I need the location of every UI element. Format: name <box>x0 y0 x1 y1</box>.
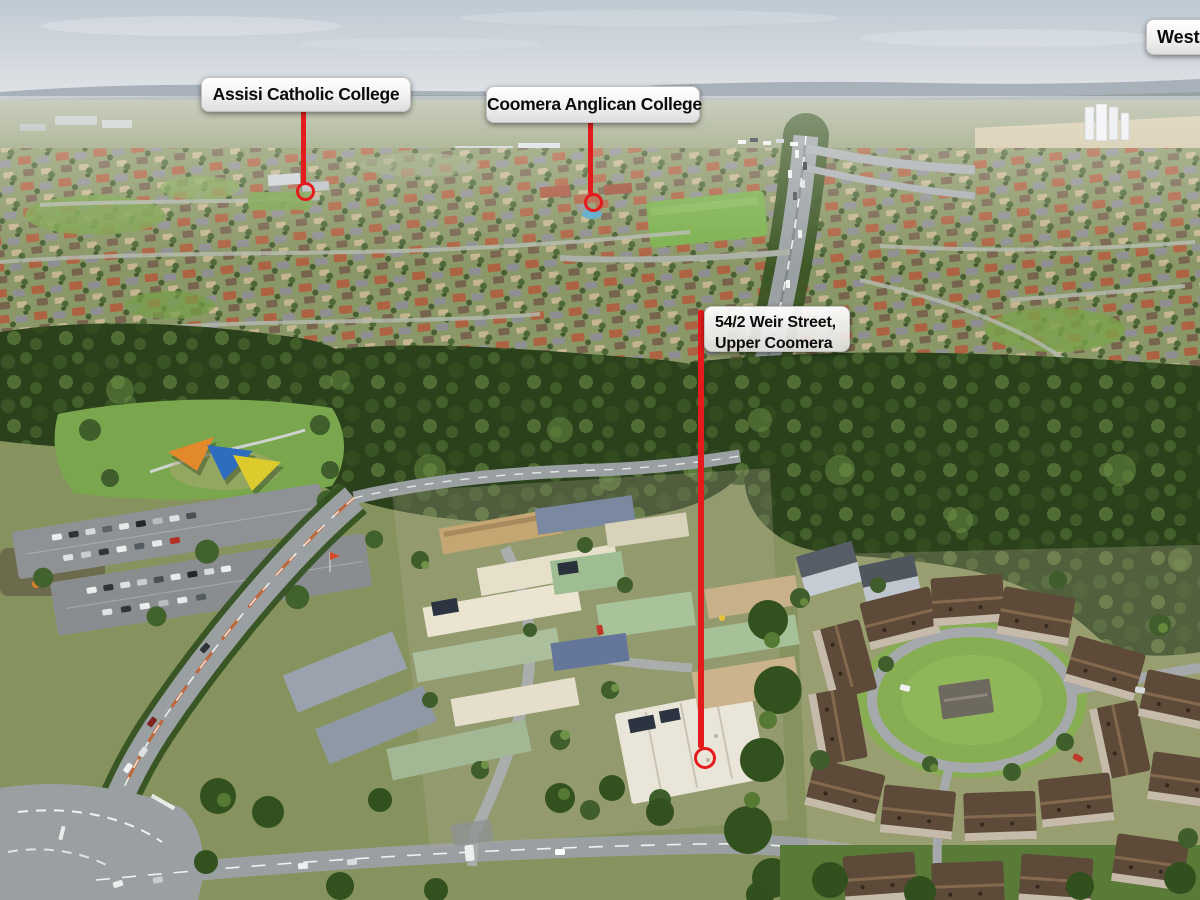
property-address-line2: Upper Coomera <box>715 333 839 354</box>
pointer-line-assisi <box>301 106 306 184</box>
callout-property-address: 54/2 Weir Street, Upper Coomera <box>704 306 850 352</box>
callout-assisi-text: Assisi Catholic College <box>213 84 400 104</box>
callout-assisi-catholic-college: Assisi Catholic College <box>201 77 411 112</box>
callout-coomera-anglican-college: Coomera Anglican College <box>486 86 700 123</box>
marker-coomera-anglican <box>584 193 603 212</box>
marker-assisi <box>296 182 315 201</box>
aerial-photo-background <box>0 0 1200 900</box>
property-address-line1: 54/2 Weir Street, <box>715 312 839 333</box>
callout-coomera-anglican-text: Coomera Anglican College <box>487 94 702 114</box>
pointer-line-coomera-anglican <box>588 118 593 194</box>
marker-property <box>694 747 716 769</box>
pointer-line-property <box>698 310 704 748</box>
callout-westfield: Westfie <box>1146 19 1200 55</box>
brown-roof-complex <box>780 541 1200 900</box>
park-shade-sails <box>55 399 344 499</box>
central-townhouse-complex <box>283 468 801 866</box>
callout-westfield-text: Westfie <box>1157 27 1200 47</box>
aerial-location-photo: Assisi Catholic College Coomera Anglican… <box>0 0 1200 900</box>
